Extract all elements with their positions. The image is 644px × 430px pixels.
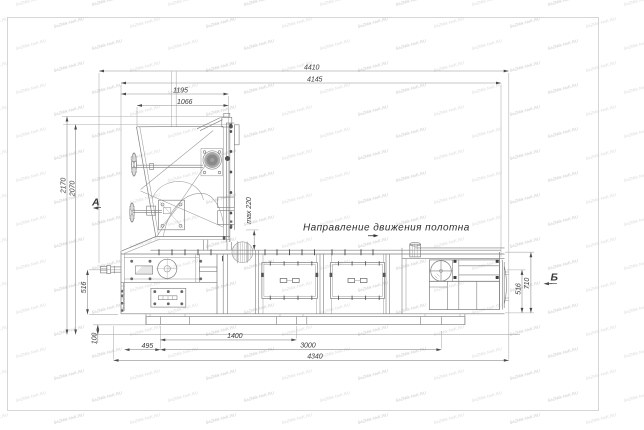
svg-text:1066: 1066 bbox=[177, 98, 193, 106]
svg-text:516: 516 bbox=[515, 283, 523, 295]
svg-text:1400: 1400 bbox=[227, 332, 243, 340]
svg-text:100: 100 bbox=[91, 333, 99, 345]
svg-text:516: 516 bbox=[80, 282, 88, 294]
svg-text:2170: 2170 bbox=[60, 178, 68, 195]
svg-text:Б: Б bbox=[551, 272, 559, 284]
svg-text:max 220: max 220 bbox=[245, 197, 253, 224]
svg-text:495: 495 bbox=[142, 342, 154, 350]
svg-text:4340: 4340 bbox=[307, 353, 323, 361]
svg-text:4145: 4145 bbox=[307, 76, 323, 84]
svg-text:2070: 2070 bbox=[68, 181, 76, 198]
svg-text:1195: 1195 bbox=[173, 86, 188, 94]
svg-text:710: 710 bbox=[523, 278, 531, 290]
svg-text:4410: 4410 bbox=[304, 63, 320, 71]
svg-text:Направление движения полотна: Направление движения полотна bbox=[303, 222, 470, 233]
svg-text:3000: 3000 bbox=[300, 341, 316, 349]
